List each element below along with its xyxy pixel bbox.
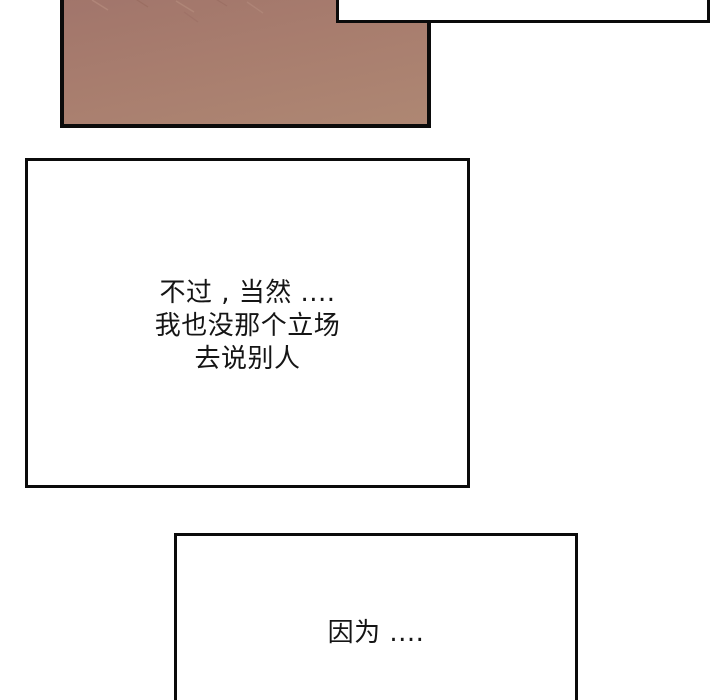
speech-bubble-top-cropped	[336, 0, 710, 23]
speech-bubble-bottom: 因为 ....	[174, 533, 578, 700]
dialogue-line-4: 因为 ....	[328, 617, 425, 650]
dialogue-line-1: 不过 , 当然 ....	[159, 277, 335, 310]
dialogue-line-2: 我也没那个立场	[155, 310, 341, 343]
dialogue-line-3: 去说别人	[194, 343, 300, 376]
speech-bubble-middle: 不过 , 当然 .... 我也没那个立场 去说别人	[25, 158, 470, 488]
webtoon-page: 不过 , 当然 .... 我也没那个立场 去说别人 因为 ....	[0, 0, 720, 700]
